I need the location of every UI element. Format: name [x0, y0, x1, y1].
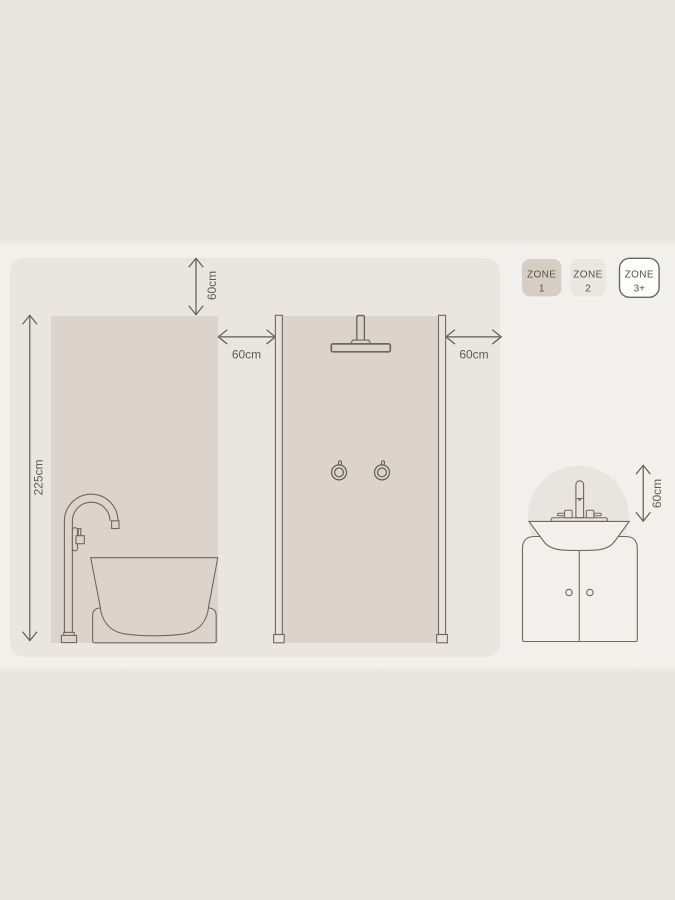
svg-text:2: 2 — [585, 284, 591, 295]
svg-text:225cm: 225cm — [32, 459, 46, 495]
svg-text:60cm: 60cm — [650, 479, 664, 508]
svg-text:1: 1 — [539, 284, 545, 295]
svg-text:ZONE: ZONE — [573, 270, 602, 281]
svg-text:60cm: 60cm — [459, 348, 488, 362]
svg-text:ZONE: ZONE — [625, 270, 654, 281]
svg-text:ZONE: ZONE — [527, 270, 556, 281]
svg-text:60cm: 60cm — [232, 348, 261, 362]
svg-text:60cm: 60cm — [205, 271, 219, 300]
svg-text:3+: 3+ — [634, 284, 646, 295]
